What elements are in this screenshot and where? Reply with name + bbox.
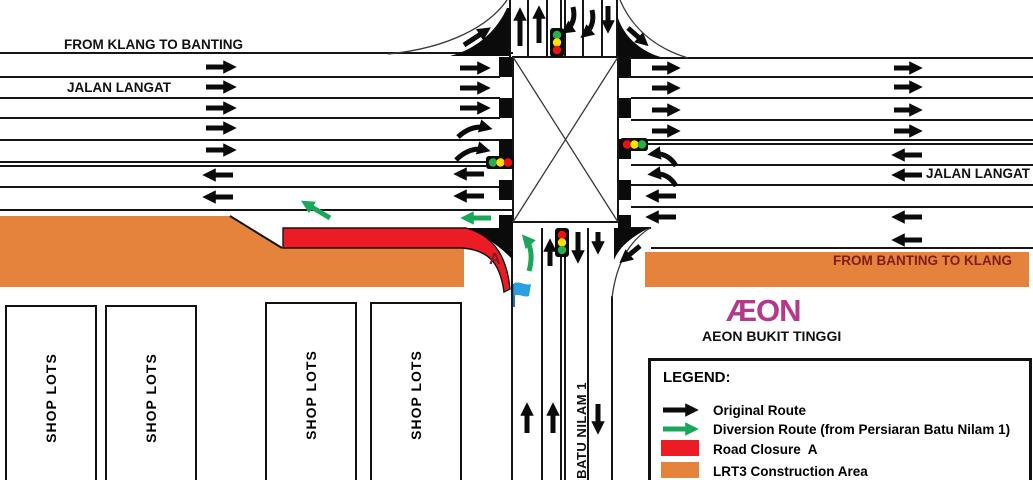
traffic-light-icon-north bbox=[550, 28, 564, 57]
shop-lots-block-4: SHOP LOTS bbox=[370, 302, 462, 480]
legend-title: LEGEND: bbox=[663, 369, 731, 386]
jalan-langat-east-lanes bbox=[618, 58, 1033, 248]
traffic-diversion-diagram: { "labels": { "from_klang_to_banting": "… bbox=[0, 0, 1033, 480]
shop-lots-block-3: SHOP LOTS bbox=[265, 302, 357, 480]
label-jalan-langat-east: JALAN LANGAT bbox=[926, 166, 1030, 181]
flag-icon bbox=[514, 283, 531, 307]
orange-swatch bbox=[661, 462, 699, 478]
traffic-light-icon-south bbox=[555, 228, 569, 257]
label-closure-a: A bbox=[489, 251, 501, 269]
legend-item-original-route: Original Route bbox=[661, 401, 806, 419]
shop-lots-block-1: SHOP LOTS bbox=[5, 305, 97, 480]
red-swatch bbox=[661, 440, 699, 456]
junction-box bbox=[513, 57, 618, 222]
legend-item-diversion-route: Diversion Route (from Persiaran Batu Nil… bbox=[661, 420, 1010, 438]
traffic-light-icon-west bbox=[486, 156, 514, 169]
shop-lots-block-2: SHOP LOTS bbox=[105, 305, 197, 480]
traffic-light-icon-east bbox=[620, 138, 648, 151]
black-arrow-icon bbox=[661, 401, 705, 419]
lrt3-construction-areas bbox=[0, 216, 1029, 287]
label-aeon-bukit-tinggi: AEON BUKIT TINGGI bbox=[702, 328, 841, 344]
aeon-logo: ÆON bbox=[726, 293, 801, 329]
legend-item-construction: LRT3 Construction Area bbox=[661, 462, 868, 480]
legend-item-road-closure: Road Closure A bbox=[661, 440, 818, 458]
legend-box: LEGEND: Original Route Diversion Route (… bbox=[648, 358, 1032, 480]
green-arrow-icon bbox=[661, 420, 705, 438]
label-from-banting-to-klang: FROM BANTING TO KLANG bbox=[833, 253, 1012, 268]
label-jalan-langat-west: JALAN LANGAT bbox=[67, 80, 171, 95]
label-from-klang-to-banting: FROM KLANG TO BANTING bbox=[64, 37, 243, 52]
